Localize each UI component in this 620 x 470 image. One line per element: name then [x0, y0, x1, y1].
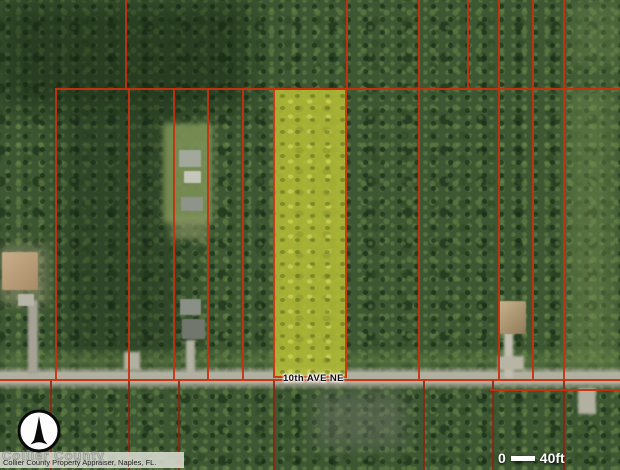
north-arrow-icon	[16, 408, 62, 454]
parcel-boundary-line	[563, 0, 565, 88]
parcel-boundary-line	[532, 88, 534, 379]
scale-start-label: 0	[498, 450, 506, 466]
parcel-boundary-line	[273, 379, 275, 470]
parcel-boundary-line	[498, 88, 500, 379]
light-canopy	[570, 0, 620, 70]
driveway	[498, 356, 524, 370]
clearing-lawn	[170, 215, 208, 240]
parcel-boundary-line	[492, 379, 494, 470]
parcel-boundary-line	[207, 88, 209, 379]
parcel-boundary-line	[423, 379, 425, 470]
parcel-boundary-line	[128, 88, 130, 379]
parcel-boundary-line	[418, 0, 420, 88]
dark-canopy	[60, 100, 180, 360]
driveway	[124, 352, 140, 370]
parcel-boundary-line	[498, 0, 500, 88]
highlighted-parcel	[273, 88, 347, 378]
house	[180, 299, 201, 315]
driveway	[504, 332, 513, 378]
scale-end-label: 40ft	[540, 450, 565, 466]
street-label: 10th AVE NE	[283, 373, 344, 384]
house	[184, 171, 201, 183]
scale-bar-segment	[511, 456, 535, 461]
scale-bar: 0 40ft	[498, 450, 565, 466]
gray-trees	[315, 392, 405, 447]
shed	[18, 294, 34, 306]
house	[182, 319, 205, 339]
parcel-boundary-line	[173, 88, 175, 379]
parcel-boundary-line	[532, 0, 534, 88]
parcel-boundary-line	[125, 0, 127, 88]
road-boundary-line	[490, 389, 620, 391]
parcel-boundary-line	[346, 0, 348, 88]
driveway	[186, 340, 195, 374]
parcel-boundary-line	[55, 88, 57, 379]
shed	[181, 197, 203, 211]
house	[499, 301, 526, 334]
parcel-boundary-line	[467, 0, 469, 88]
parcel-boundary-line	[418, 88, 420, 379]
driveway	[28, 300, 38, 374]
light-canopy-strip	[566, 85, 614, 370]
parcel-boundary-line	[55, 88, 620, 90]
driveway	[578, 388, 596, 414]
parcel-boundary-line	[242, 88, 244, 379]
house	[179, 150, 201, 167]
aerial-map: 10th AVE NE Collier County Collier Count…	[0, 0, 620, 470]
house	[2, 252, 38, 290]
parcel-boundary-line	[563, 88, 565, 379]
